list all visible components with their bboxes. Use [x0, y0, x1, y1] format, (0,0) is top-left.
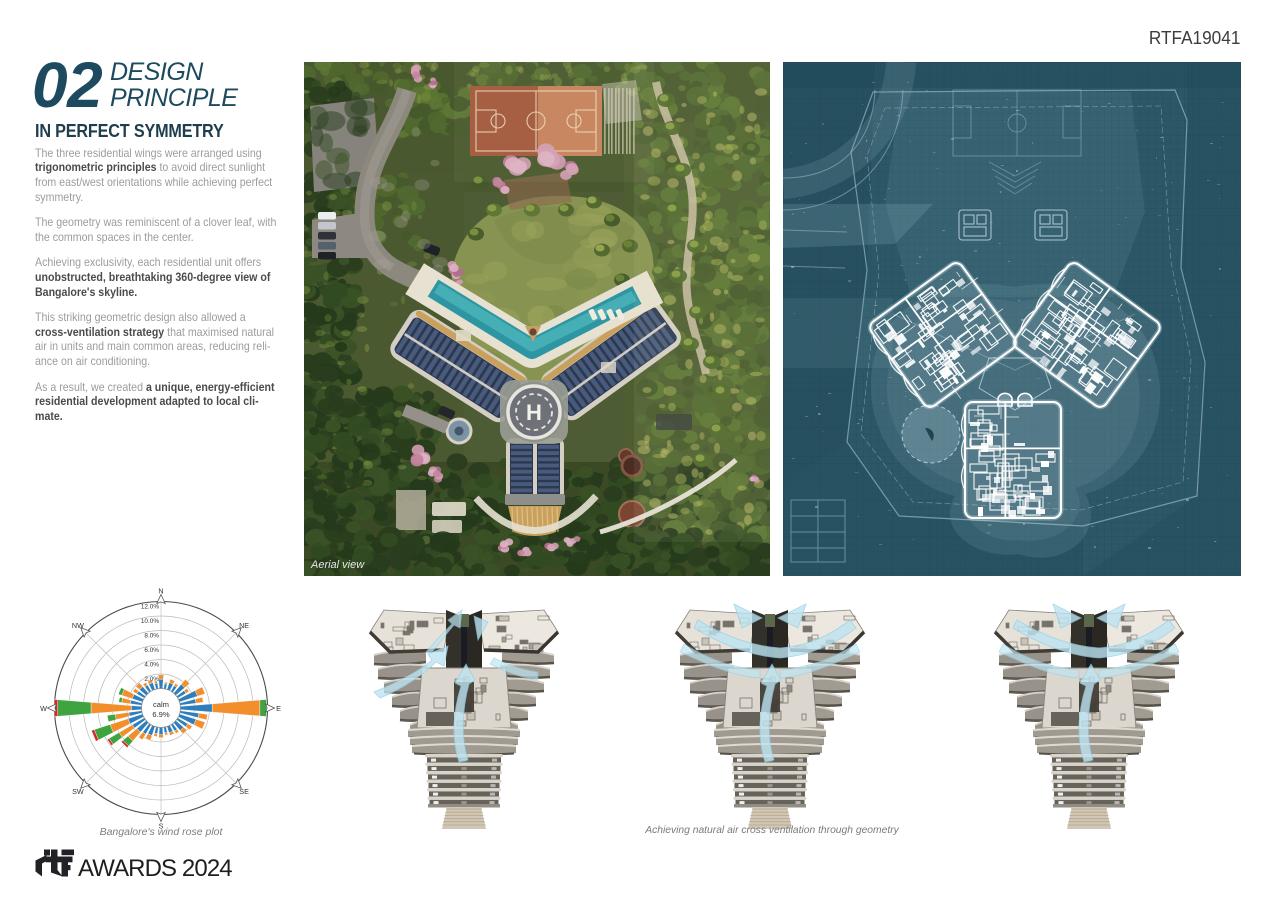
svg-text:H: H [526, 400, 542, 425]
svg-text:NW: NW [72, 621, 84, 630]
svg-text:12.0%: 12.0% [141, 604, 159, 611]
svg-text:8.0%: 8.0% [144, 633, 159, 640]
svg-text:AWARDS 2024: AWARDS 2024 [78, 855, 232, 881]
svg-text:Aerial view: Aerial view [310, 559, 365, 571]
svg-text:6.9%: 6.9% [152, 710, 170, 719]
svg-text:W: W [40, 704, 47, 713]
svg-text:N: N [158, 588, 163, 596]
svg-text:SW: SW [72, 787, 84, 796]
svg-text:6.0%: 6.0% [144, 647, 159, 654]
svg-text:E: E [276, 704, 281, 713]
svg-text:10.0%: 10.0% [141, 618, 159, 625]
svg-text:2.0%: 2.0% [144, 676, 159, 683]
svg-text:calm: calm [153, 700, 169, 709]
svg-text:NE: NE [239, 621, 249, 630]
svg-text:SE: SE [239, 787, 249, 796]
svg-text:4.0%: 4.0% [144, 662, 159, 669]
